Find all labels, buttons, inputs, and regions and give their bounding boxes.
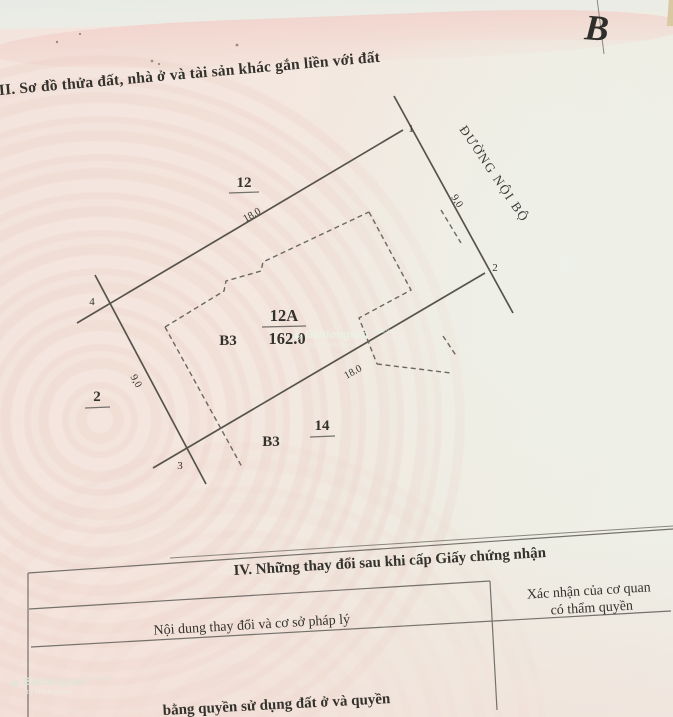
- watermark-batdongsan-center: ◈ Batdongsan .com.vn by PropertyGuru: [292, 329, 393, 349]
- table-col-confirm-header-line2: có thẩm quyền: [550, 599, 633, 619]
- watermark-domain: .com.vn: [372, 329, 393, 335]
- main-parcel-number: 12A: [270, 306, 299, 325]
- corner-point-1: 1: [408, 123, 414, 135]
- corner-point-4: 4: [89, 296, 95, 308]
- ink-speck: [236, 44, 239, 47]
- bottom-clipped-text: bằng quyền sử dụng đất ở và quyền: [162, 691, 391, 717]
- watermark-byline: by PropertyGuru: [27, 690, 111, 696]
- building-outline-top: [165, 212, 369, 327]
- corner-point-3: 3: [177, 460, 183, 472]
- main-parcel-fraction-line: [262, 326, 306, 327]
- land-plot-diagram: III. Sơ đồ thửa đất, nhà ở và tài sản kh…: [0, 0, 673, 717]
- table-column-divider: [490, 581, 497, 710]
- watermark-batdongsan-bottom: ◈ Batdongsan .com.vn by PropertyGuru: [10, 676, 111, 696]
- ink-speck: [79, 33, 81, 35]
- ink-speck: [151, 60, 154, 63]
- neighbor-outline-upper: [441, 210, 461, 243]
- batdongsan-logo-icon: ◈: [292, 329, 302, 342]
- dimension-top: 18.0: [242, 206, 263, 225]
- page-mark: B: [582, 7, 610, 49]
- watermark-byline: by PropertyGuru: [309, 343, 393, 349]
- corner-point-2: 2: [492, 262, 498, 274]
- block-b3-lower: B3: [262, 434, 280, 450]
- ink-speck: [56, 41, 58, 43]
- ink-speck: [158, 63, 160, 65]
- dimension-road: 9,0: [448, 193, 464, 210]
- watermark-brand: Batdongsan: [305, 330, 369, 341]
- boundary-top-side: [77, 130, 403, 323]
- parcel-12-underline: [229, 192, 259, 193]
- section4-title: IV. Những thay đổi sau khi cấp Giấy chứn…: [233, 545, 547, 579]
- block-b3-upper: B3: [219, 333, 237, 349]
- parcel-14-underline: [310, 436, 335, 437]
- dimension-bottom: 18.0: [343, 363, 364, 382]
- boundary-bottom-side: [153, 273, 485, 468]
- parcel-2-label: 2: [93, 389, 101, 405]
- parcel-2-underline: [85, 407, 110, 408]
- certificate-page: III. Sơ đồ thửa đất, nhà ở và tài sản kh…: [0, 0, 673, 717]
- watermark-domain: .com.vn: [90, 676, 111, 682]
- neighbor-outline-lower: [443, 336, 457, 357]
- boundary-left-side: [95, 275, 206, 484]
- watermark-brand: Batdongsan: [23, 677, 87, 688]
- road-name-label: ĐƯỜNG NỘI BỘ: [457, 123, 533, 225]
- batdongsan-logo-icon: ◈: [10, 676, 20, 689]
- parcel-14-label: 14: [315, 418, 331, 434]
- table-heading-row-border: [29, 581, 490, 609]
- building-outline-bottom-right: [377, 364, 451, 373]
- dimension-left: 9,0: [128, 373, 144, 390]
- section3-title: III. Sơ đồ thửa đất, nhà ở và tài sản kh…: [0, 49, 381, 100]
- parcel-12-label: 12: [237, 175, 252, 191]
